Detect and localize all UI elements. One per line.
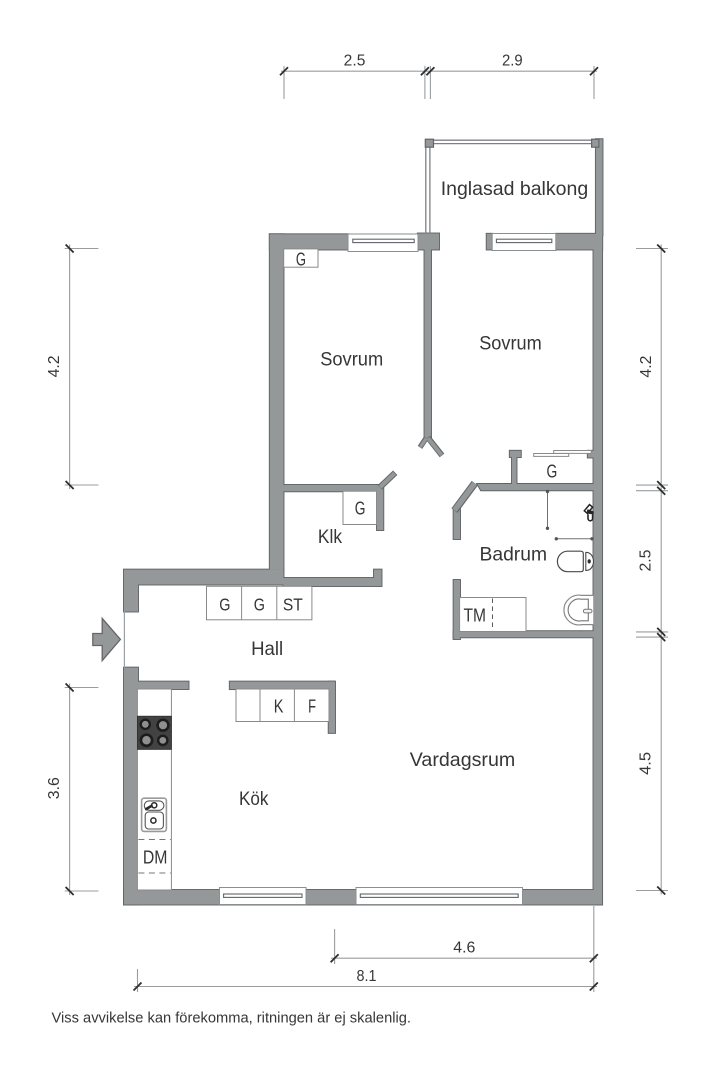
svg-text:G: G — [296, 249, 306, 270]
svg-text:ST: ST — [283, 595, 303, 615]
svg-text:G: G — [254, 595, 265, 615]
svg-text:K: K — [274, 696, 284, 717]
svg-text:Viss avvikelse kan förekomma,: Viss avvikelse kan förekomma, ritningen … — [52, 1009, 412, 1026]
svg-text:Badrum: Badrum — [480, 544, 548, 566]
svg-text:Vardagsrum: Vardagsrum — [410, 749, 515, 771]
svg-text:DM: DM — [143, 847, 168, 868]
svg-text:G: G — [355, 498, 366, 519]
svg-text:4.2: 4.2 — [46, 355, 63, 377]
svg-text:3.6: 3.6 — [46, 777, 63, 799]
svg-text:Sovrum: Sovrum — [479, 333, 542, 355]
svg-text:F: F — [308, 696, 316, 717]
svg-text:TM: TM — [464, 605, 487, 626]
svg-text:2.5: 2.5 — [344, 53, 366, 70]
svg-text:Sovrum: Sovrum — [320, 349, 383, 371]
svg-text:Inglasad balkong: Inglasad balkong — [441, 178, 589, 200]
svg-text:8.1: 8.1 — [357, 968, 377, 985]
svg-text:Hall: Hall — [251, 638, 283, 660]
svg-text:G: G — [547, 461, 558, 482]
svg-text:2.9: 2.9 — [502, 52, 523, 69]
svg-text:4.6: 4.6 — [453, 940, 475, 957]
svg-text:4.2: 4.2 — [638, 356, 655, 378]
svg-text:2.5: 2.5 — [638, 550, 655, 572]
svg-text:G: G — [219, 595, 230, 615]
svg-text:Klk: Klk — [318, 526, 342, 548]
svg-text:Kök: Kök — [239, 788, 269, 810]
svg-text:4.5: 4.5 — [638, 752, 655, 775]
